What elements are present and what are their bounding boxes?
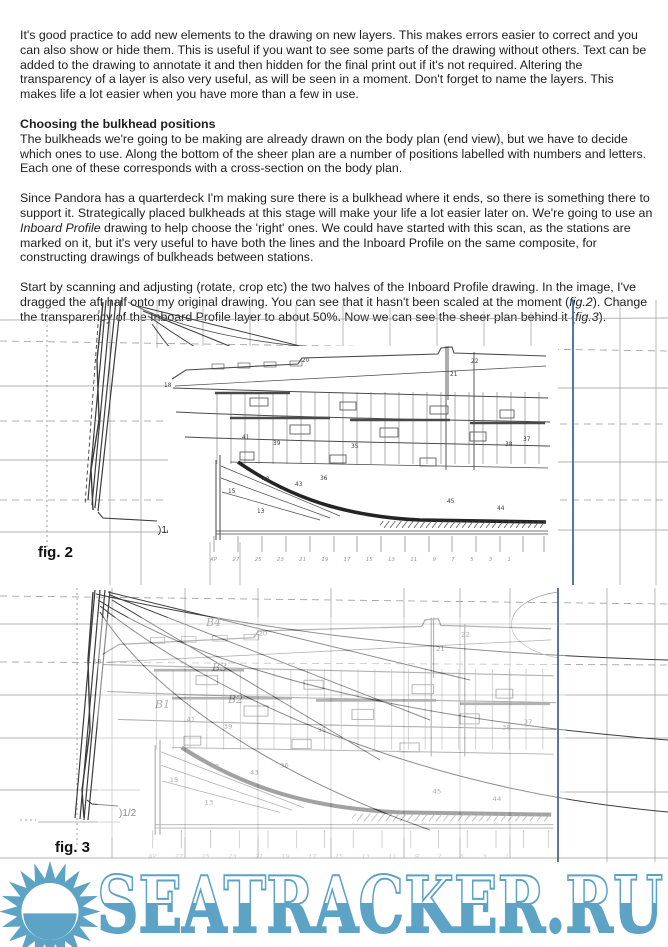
fig3-caption: fig. 3: [55, 839, 90, 856]
inboard-profile-scan-transparent: [93, 618, 566, 861]
svg-text:SEATRACKER.RU: SEATRACKER.RU: [97, 860, 663, 946]
svg-text:42: 42: [262, 477, 270, 483]
svg-text:41: 41: [242, 435, 250, 441]
figure-2-plan: )1/2: [0, 300, 668, 590]
seatracker-watermark: SEATRACKER.RU: [0, 856, 668, 947]
svg-text:39: 39: [273, 441, 281, 447]
document-page: It's good practice to add new elements t…: [0, 0, 668, 947]
svg-text:37: 37: [523, 437, 531, 443]
paragraph-pandora: Since Pandora has a quarterdeck I'm maki…: [20, 191, 653, 265]
svg-text:44: 44: [497, 506, 505, 512]
text-block: It's good practice to add new elements t…: [20, 28, 653, 340]
paragraph-layers: It's good practice to add new elements t…: [20, 28, 653, 102]
svg-text:36: 36: [320, 476, 328, 482]
svg-text:38: 38: [505, 442, 513, 448]
inboard-profile-scan: AP 27 25 23 21 19 17 15 13 11 9 7 5 3 1 …: [164, 346, 558, 563]
watermark-text: SEATRACKER.RU: [95, 858, 668, 946]
paragraph-bulkheads: The bulkheads we're going to be making a…: [20, 132, 653, 176]
svg-text:21: 21: [450, 372, 458, 378]
svg-text:45: 45: [447, 499, 455, 505]
sun-logo-icon: [0, 860, 110, 947]
svg-text:22: 22: [471, 359, 479, 365]
figure-3-plan: )1/2 B4 B3 B2 B1 fig. 3: [0, 585, 668, 863]
fig2-station-labels: AP 27 25 23 21 19 17 15 13 11 9 7 5 3 1: [209, 557, 511, 563]
fig2-caption: fig. 2: [38, 544, 73, 561]
svg-text:15: 15: [228, 489, 236, 495]
section-heading: Choosing the bulkhead positions: [20, 117, 653, 132]
svg-text:35: 35: [351, 444, 359, 450]
svg-text:13: 13: [257, 509, 265, 515]
svg-text:43: 43: [295, 482, 303, 488]
svg-text:18: 18: [164, 383, 172, 389]
svg-text:20: 20: [302, 358, 310, 364]
